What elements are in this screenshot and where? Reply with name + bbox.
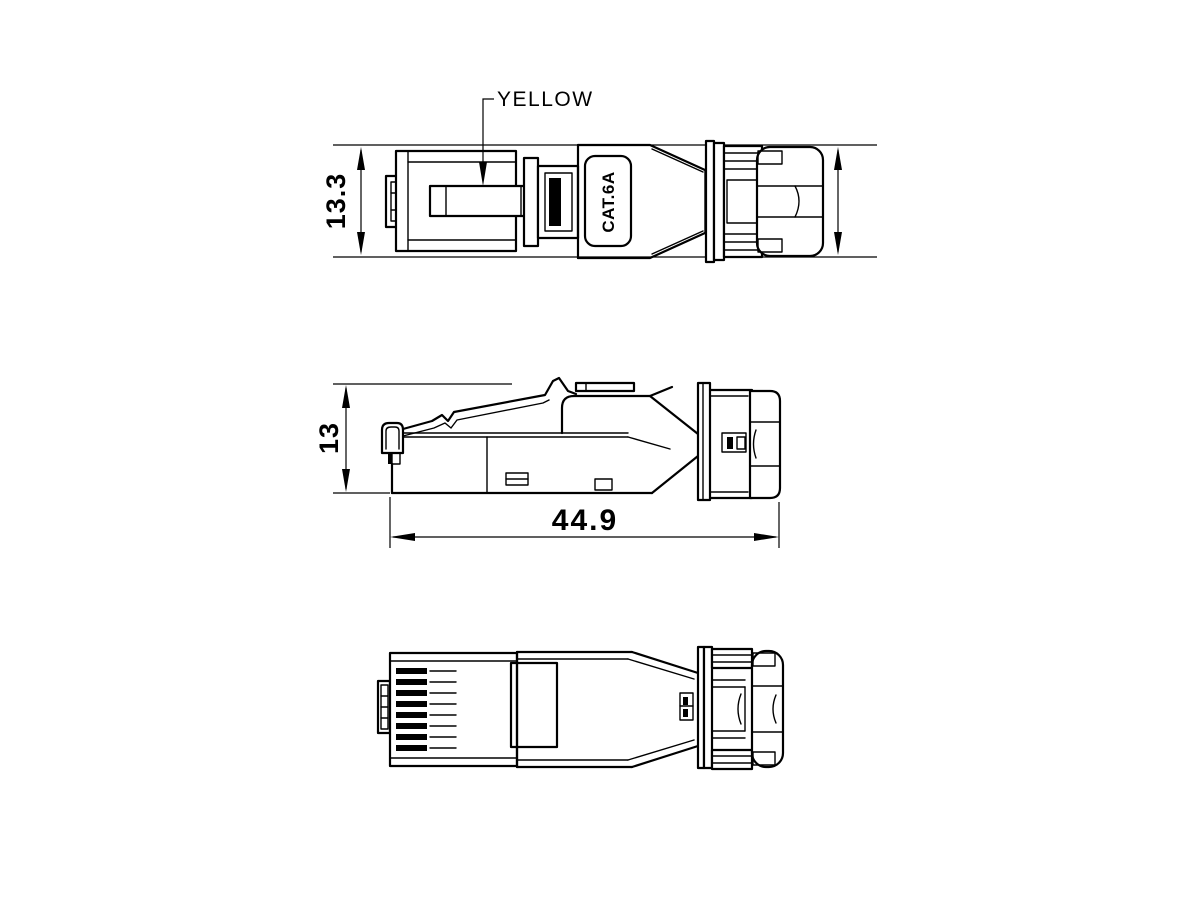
- plug-nose-bottom: [390, 653, 517, 766]
- interface-block: [524, 158, 578, 246]
- plug-slot: [549, 178, 561, 226]
- cable-boot-bottom: [698, 647, 783, 769]
- connector-profile: [382, 378, 698, 493]
- side-view: 13: [314, 378, 780, 548]
- cable-boot-side: [698, 383, 780, 500]
- connector-housing-bottom: [517, 652, 698, 767]
- yellow-callout-label: YELLOW: [497, 88, 594, 111]
- top-view: 13.3 13.6: [321, 88, 877, 262]
- latch-catch: [576, 383, 634, 391]
- dim-total-length: 44.9: [390, 497, 779, 548]
- cable-boot-top: [706, 141, 823, 262]
- yellow-part: [430, 186, 536, 216]
- dim-plug-height-label: 13.3: [321, 173, 351, 230]
- dim-plug-height: 13.3: [321, 147, 365, 255]
- cat-marking-label: CAT.6A: [599, 171, 618, 232]
- connector-technical-drawing: 13.3 13.6: [0, 0, 1200, 900]
- housing-hump: [562, 387, 672, 433]
- boot-end-cap-side: [750, 391, 780, 498]
- latch-arm: [403, 378, 576, 429]
- connector-housing-top: CAT.6A: [578, 145, 705, 258]
- technical-drawing-page: 13.3 13.6: [0, 0, 1200, 900]
- side-view-extension-lines: [333, 384, 512, 493]
- bottom-view: [378, 647, 783, 769]
- dim-front-height-label: 13: [314, 422, 344, 454]
- front-tab: [378, 681, 390, 733]
- dim-front-height: 13: [314, 385, 350, 492]
- dim-total-length-label: 44.9: [552, 504, 618, 537]
- boot-end-cap-bottom: [752, 651, 783, 767]
